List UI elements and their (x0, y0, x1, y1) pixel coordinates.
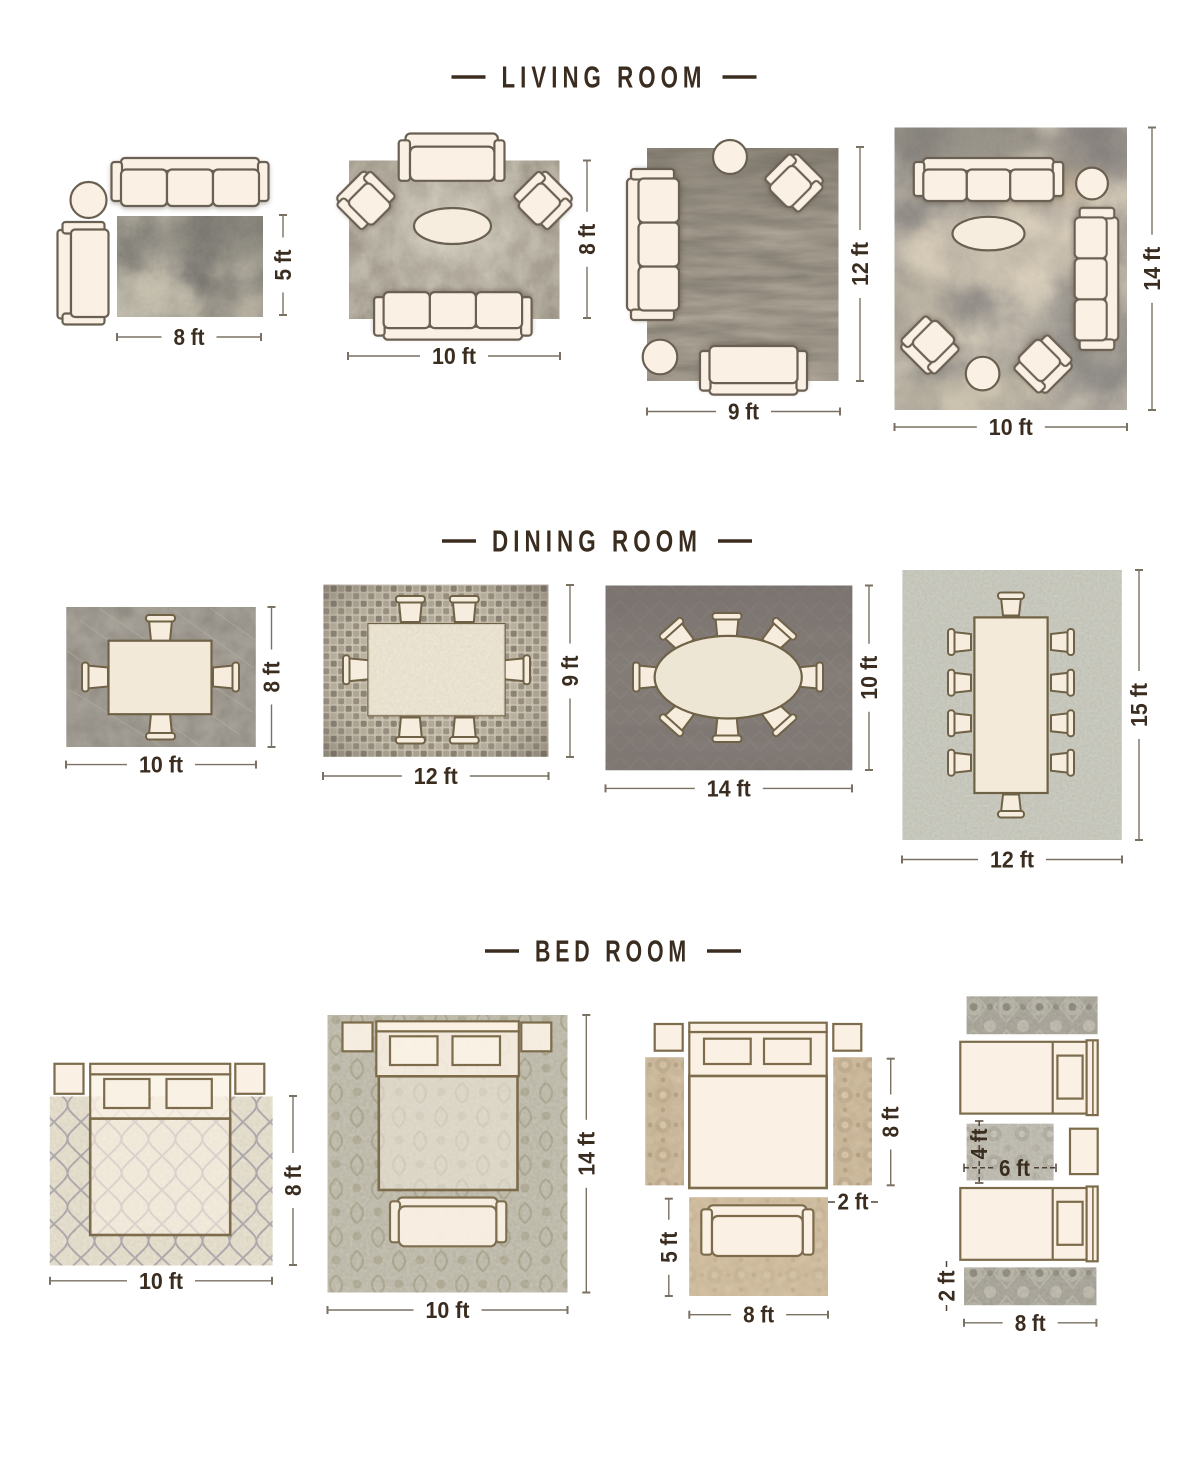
svg-text:8 ft: 8 ft (1015, 1310, 1046, 1336)
svg-text:10 ft: 10 ft (426, 1297, 470, 1323)
svg-text:10 ft: 10 ft (139, 1268, 183, 1294)
svg-text:12 ft: 12 ft (990, 847, 1034, 873)
svg-text:12 ft: 12 ft (847, 242, 873, 286)
svg-text:2 ft: 2 ft (838, 1188, 869, 1214)
svg-text:LIVING ROOM: LIVING ROOM (502, 60, 707, 95)
svg-text:14 ft: 14 ft (1139, 246, 1165, 290)
svg-text:10 ft: 10 ft (856, 655, 882, 699)
svg-text:8 ft: 8 ft (574, 223, 600, 254)
svg-text:12 ft: 12 ft (414, 763, 458, 789)
svg-text:14 ft: 14 ft (707, 775, 751, 801)
svg-text:8 ft: 8 ft (280, 1165, 306, 1196)
svg-text:8 ft: 8 ft (878, 1106, 904, 1137)
svg-text:10 ft: 10 ft (432, 343, 476, 369)
svg-text:5 ft: 5 ft (270, 249, 296, 280)
svg-text:DINING ROOM: DINING ROOM (492, 524, 702, 559)
svg-text:9 ft: 9 ft (557, 655, 583, 686)
svg-text:10 ft: 10 ft (139, 752, 183, 778)
svg-text:BED ROOM: BED ROOM (535, 934, 691, 969)
svg-text:2 ft: 2 ft (934, 1270, 960, 1301)
svg-text:15 ft: 15 ft (1126, 683, 1152, 727)
svg-text:8 ft: 8 ft (743, 1302, 774, 1328)
svg-text:5 ft: 5 ft (656, 1231, 682, 1262)
svg-text:4 ft: 4 ft (966, 1128, 992, 1159)
svg-text:9 ft: 9 ft (728, 399, 759, 425)
svg-text:10 ft: 10 ft (989, 414, 1033, 440)
svg-text:14 ft: 14 ft (573, 1131, 599, 1175)
svg-text:6 ft: 6 ft (999, 1155, 1030, 1181)
svg-text:8 ft: 8 ft (259, 661, 285, 692)
svg-text:8 ft: 8 ft (174, 324, 205, 350)
